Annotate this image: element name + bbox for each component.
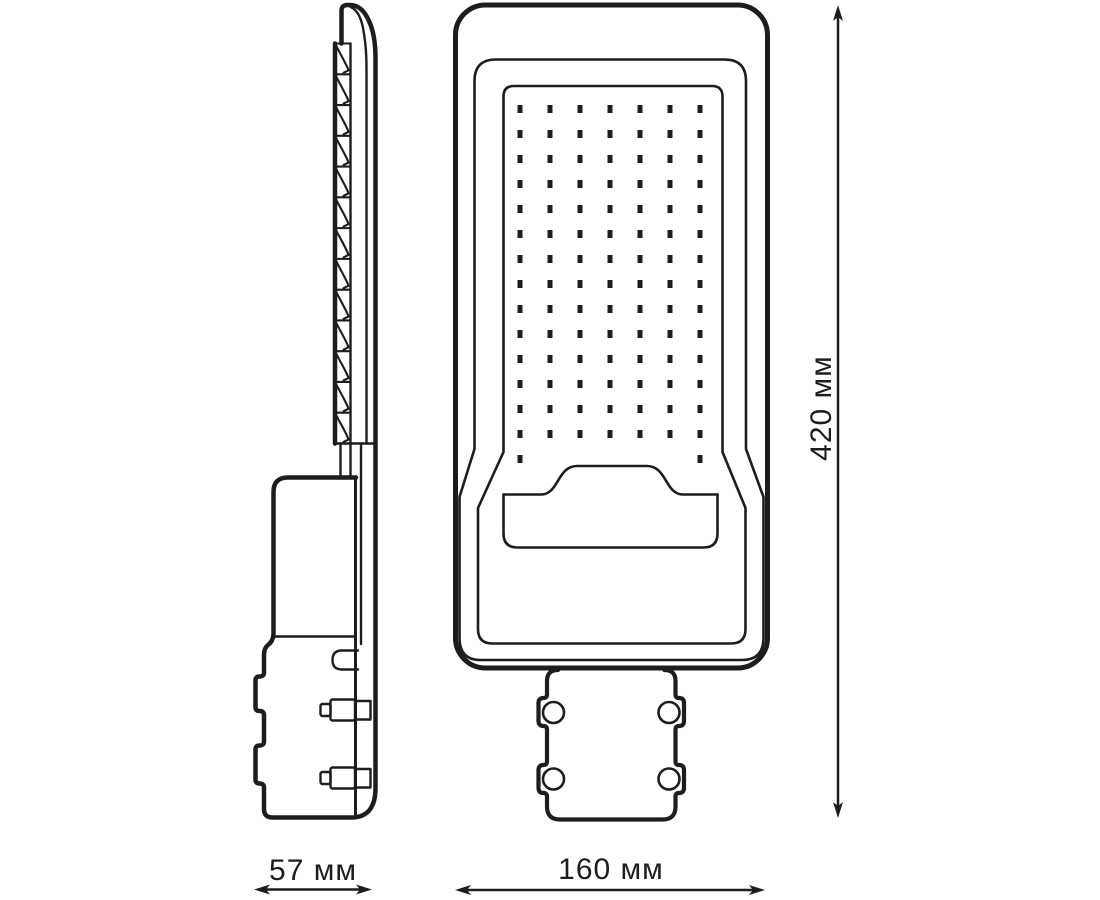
led-dot [698,255,703,263]
led-dot [518,305,523,313]
led-dot [608,405,613,413]
led-dot [668,330,673,338]
led-dot [638,105,643,113]
bolt-head [321,704,331,716]
bolt-head [321,772,331,784]
led-dot [668,405,673,413]
led-dot [518,405,523,413]
led-dot [698,130,703,138]
led-dot [578,430,583,438]
led-dot [548,130,553,138]
led-dot [668,180,673,188]
led-dot [638,355,643,363]
led-dot [548,330,553,338]
led-dot [638,155,643,163]
led-dot [518,130,523,138]
clamp-bolt-top [321,700,371,721]
led-dot [548,205,553,213]
led-dot [698,230,703,238]
fin-blade [336,353,349,380]
led-dot [608,180,613,188]
fin-stack [335,44,351,444]
led-dot [668,130,673,138]
led-dot [518,205,523,213]
led-dot [578,105,583,113]
led-dot [638,130,643,138]
side-width-dim-label: 57 мм [269,854,357,887]
led-dot [698,430,703,438]
led-dot [608,305,613,313]
led-dot [548,230,553,238]
led-dot [668,255,673,263]
fin-blade [336,230,349,257]
led-dot [608,205,613,213]
street-light-drawing: 420 мм 57 мм 160 мм [0,0,1100,900]
led-dot [638,430,643,438]
mount-bolt-hole [543,769,564,790]
fin-blade [336,107,349,134]
led-dot [668,280,673,288]
led-dot [518,230,523,238]
led-dot [578,305,583,313]
led-dot [608,430,613,438]
led-dot [608,380,613,388]
led-dot [548,255,553,263]
clamp-bolt-bottom [321,768,371,789]
fin-blade [336,415,349,442]
led-dot [698,180,703,188]
led-dot [578,280,583,288]
led-dot [698,330,703,338]
led-dot [638,330,643,338]
fin-blade [336,199,349,226]
led-dot [578,330,583,338]
led-dot [548,405,553,413]
led-dot [518,355,523,363]
led-dot [518,255,523,263]
side-inner-profile [351,7,367,444]
led-dot [578,380,583,388]
led-dot [698,280,703,288]
led-dot [548,280,553,288]
fin-blade [336,261,349,288]
led-dot [578,155,583,163]
led-dot [698,155,703,163]
fin-blade [336,322,349,349]
bolt-body [331,700,356,721]
front-width-dimension: 160 мм [455,853,765,895]
led-dot [608,330,613,338]
led-dot [578,405,583,413]
led-dot [608,155,613,163]
led-dot [608,105,613,113]
mount-bolt-hole [543,702,564,723]
side-view [256,5,376,818]
led-dot [578,180,583,188]
fin-blade [336,76,349,103]
pole-mount-plate [539,670,685,820]
fin-blade [336,292,349,319]
led-dot [638,230,643,238]
led-dot [668,205,673,213]
led-dot [638,405,643,413]
led-dot [548,380,553,388]
led-dot [518,455,523,463]
led-dot [518,155,523,163]
led-dot [668,430,673,438]
led-dot [548,105,553,113]
led-dot [698,380,703,388]
led-dot [548,430,553,438]
led-dot [518,105,523,113]
led-dot [518,380,523,388]
led-dot [638,280,643,288]
led-dot [638,205,643,213]
led-dot [608,355,613,363]
led-dot [578,205,583,213]
led-dot [578,230,583,238]
led-dot [548,155,553,163]
side-view-outline [256,5,376,818]
mount-plate-outline [539,670,685,820]
led-panel-outline [478,86,746,644]
led-dot [668,355,673,363]
height-dimension: 420 мм [805,5,843,818]
led-dot [698,105,703,113]
led-dot [578,255,583,263]
front-view [456,5,768,820]
fin-blade [336,46,349,73]
led-dot [548,355,553,363]
led-dot [668,380,673,388]
led-dot [548,305,553,313]
led-dot [608,255,613,263]
led-dot [638,255,643,263]
drawing-canvas: 420 мм 57 мм 160 мм [0,0,1100,900]
led-dot [698,405,703,413]
side-width-dimension: 57 мм [254,854,372,895]
fin-blade [336,169,349,196]
led-dot [518,430,523,438]
led-dot [668,155,673,163]
led-dot [518,330,523,338]
led-dot [668,105,673,113]
bolt-nut [356,701,371,720]
led-dot [668,305,673,313]
front-width-dim-label: 160 мм [558,853,664,886]
driver-tray [504,495,718,548]
height-dim-label: 420 мм [805,355,838,461]
led-dot [578,130,583,138]
led-dot [698,205,703,213]
led-dot [578,355,583,363]
led-dot [518,180,523,188]
led-dot [638,380,643,388]
bolt-nut [356,769,371,788]
led-dot [698,305,703,313]
fin-blade [336,384,349,411]
mount-bolt-hole [659,769,680,790]
led-dot [698,455,703,463]
led-dot [668,230,673,238]
led-dot [608,280,613,288]
led-dot [638,180,643,188]
led-dot [608,230,613,238]
led-dot [548,180,553,188]
mount-bolt-hole [659,702,680,723]
led-dot [608,130,613,138]
led-grid [518,105,703,463]
fin-blade [336,138,349,165]
led-dot [698,355,703,363]
bolt-body [331,768,356,789]
driver-cover-hump [504,466,718,495]
led-dot [638,305,643,313]
led-dot [518,280,523,288]
